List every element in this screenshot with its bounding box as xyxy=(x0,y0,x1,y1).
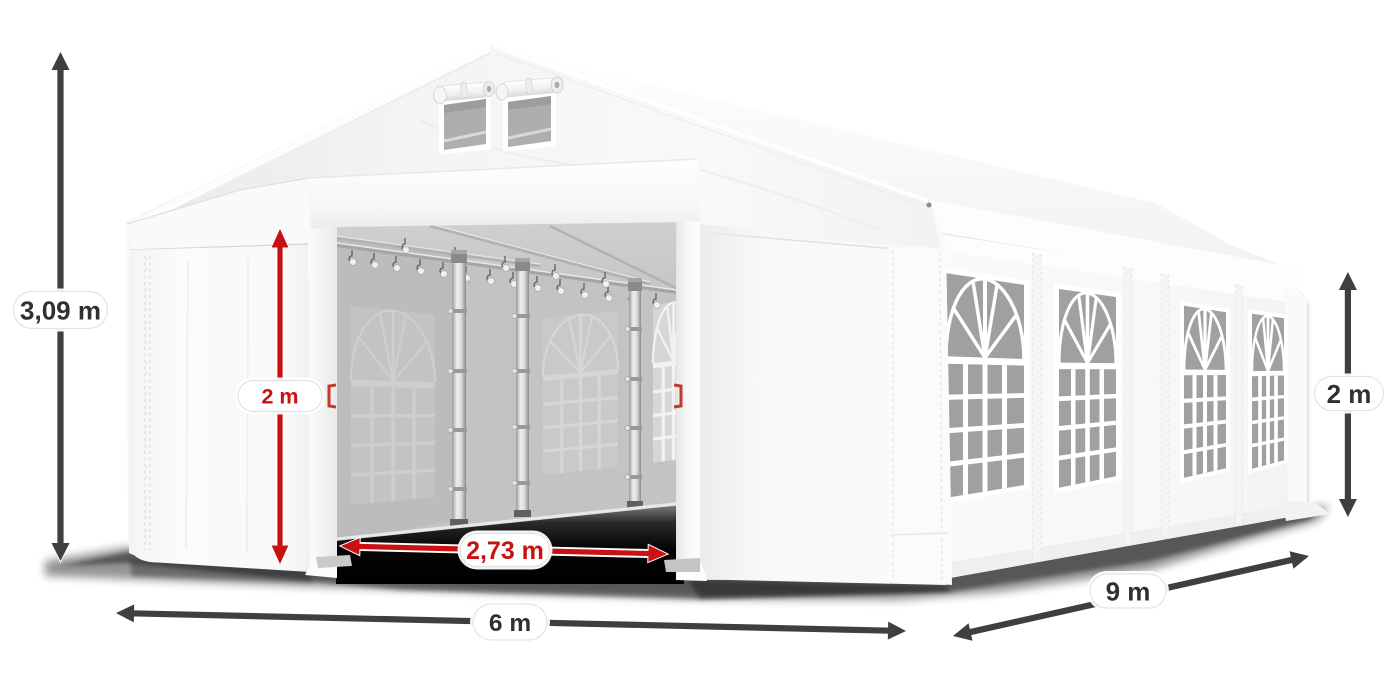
svg-text:3,09 m: 3,09 m xyxy=(20,295,101,325)
svg-text:2 m: 2 m xyxy=(1327,379,1372,409)
svg-text:2 m: 2 m xyxy=(261,385,298,409)
svg-text:9 m: 9 m xyxy=(1106,576,1151,606)
svg-text:6 m: 6 m xyxy=(489,610,531,637)
svg-text:2,73 m: 2,73 m xyxy=(466,537,544,565)
